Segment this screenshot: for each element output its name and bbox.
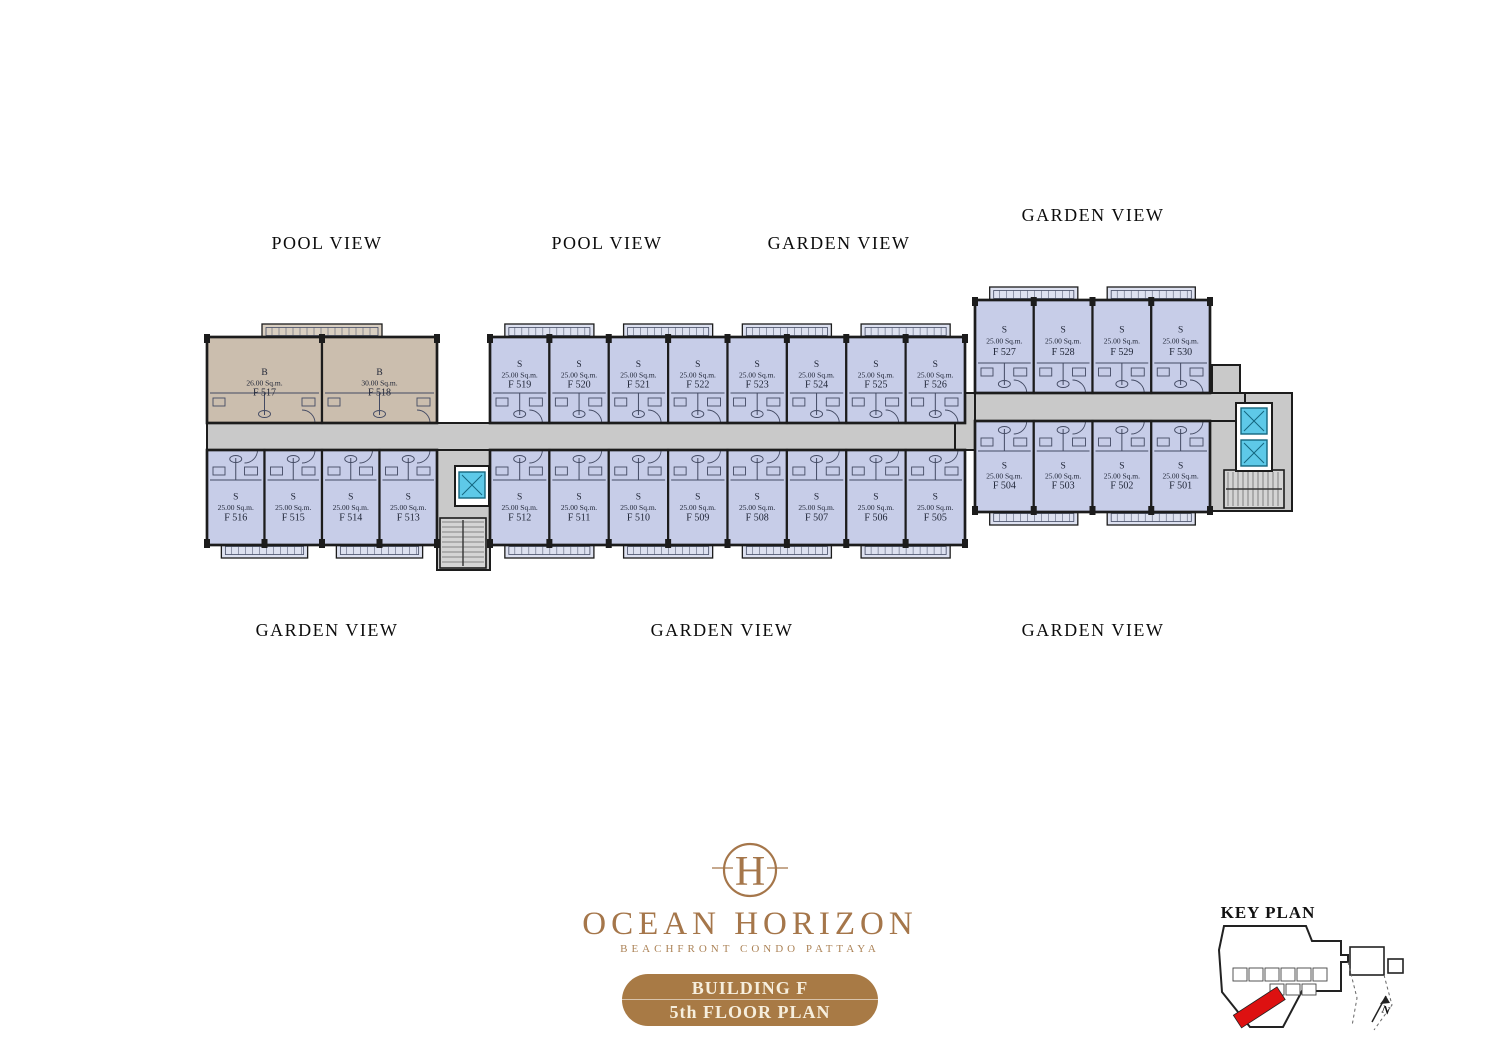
unit-area-label: 25.00 Sq.m. [1162, 337, 1198, 346]
unit-area-label: 25.00 Sq.m. [620, 370, 656, 379]
unit-number-label: F 530 [1169, 347, 1192, 358]
unit-f-508: S25.00 Sq.m.F 508 [728, 450, 787, 545]
unit-type-label: S [517, 492, 522, 502]
unit-number-label: F 524 [805, 380, 828, 391]
wall-pillar [1090, 297, 1096, 306]
unit-f-523: S25.00 Sq.m.F 523 [728, 337, 787, 423]
unit-type-label: S [406, 492, 411, 502]
unit-type-label: S [636, 492, 641, 502]
unit-f-518: B30.00 Sq.m.F 518 [322, 337, 437, 423]
unit-area-label: 25.00 Sq.m. [1045, 337, 1081, 346]
wall-pillar [1031, 506, 1037, 515]
unit-f-530: S25.00 Sq.m.F 530 [1151, 300, 1210, 393]
unit-number-label: F 507 [805, 512, 828, 523]
unit-type-label: S [1060, 326, 1065, 336]
key-plan-room [1233, 968, 1247, 981]
wall-pillar [1090, 506, 1096, 515]
wall-pillar [784, 539, 790, 548]
unit-type-label: S [1119, 326, 1124, 336]
project-name: OCEAN HORIZON [582, 906, 917, 943]
unit-number-label: F 523 [746, 380, 769, 391]
corridor [955, 393, 1245, 421]
wall-pillar [784, 334, 790, 343]
unit-type-label: S [933, 492, 938, 502]
unit-f-516: S25.00 Sq.m.F 516 [207, 450, 265, 545]
unit-f-503: S25.00 Sq.m.F 503 [1034, 421, 1093, 512]
key-plan-room [1297, 968, 1311, 981]
unit-number-label: F 521 [627, 380, 650, 391]
unit-type-label: S [636, 360, 641, 370]
unit-f-519: S25.00 Sq.m.F 519 [490, 337, 549, 423]
unit-f-506: S25.00 Sq.m.F 506 [846, 450, 905, 545]
unit-type-label: B [261, 368, 267, 378]
unit-f-510: S25.00 Sq.m.F 510 [609, 450, 668, 545]
wall-pillar [1031, 297, 1037, 306]
unit-area-label: 25.00 Sq.m. [561, 503, 597, 512]
unit-f-524: S25.00 Sq.m.F 524 [787, 337, 846, 423]
unit-f-501: S25.00 Sq.m.F 501 [1151, 421, 1210, 512]
unit-area-label: 25.00 Sq.m. [680, 370, 716, 379]
unit-type-label: B [376, 368, 382, 378]
label-garden-view-top-center: GARDEN VIEW [768, 233, 911, 254]
label-garden-view-bottom-center: GARDEN VIEW [651, 620, 794, 641]
unit-f-512: S25.00 Sq.m.F 512 [490, 450, 549, 545]
unit-number-label: F 502 [1110, 480, 1133, 491]
unit-area-label: 25.00 Sq.m. [917, 503, 953, 512]
key-plan: N [1219, 926, 1403, 1030]
unit-type-label: S [695, 360, 700, 370]
wall-pillar [377, 539, 383, 548]
unit-f-529: S25.00 Sq.m.F 529 [1093, 300, 1152, 393]
wall-pillar [319, 539, 325, 548]
key-plan-room [1286, 984, 1300, 995]
wall-pillar [725, 334, 731, 343]
wall-pillar [843, 334, 849, 343]
wall-pillar [262, 539, 268, 548]
unit-area-label: 25.00 Sq.m. [798, 503, 834, 512]
unit-type-label: S [517, 360, 522, 370]
unit-type-label: S [233, 492, 238, 502]
key-plan-title: KEY PLAN [1221, 903, 1316, 923]
key-plan-room [1249, 968, 1263, 981]
unit-area-label: 25.00 Sq.m. [986, 471, 1022, 480]
unit-area-label: 25.00 Sq.m. [275, 503, 311, 512]
unit-number-label: F 526 [924, 380, 947, 391]
unit-f-511: S25.00 Sq.m.F 511 [549, 450, 608, 545]
unit-type-label: S [1002, 461, 1007, 471]
unit-area-label: 25.00 Sq.m. [333, 503, 369, 512]
unit-number-label: F 527 [993, 347, 1016, 358]
unit-f-527: S25.00 Sq.m.F 527 [975, 300, 1034, 393]
unit-type-label: S [1178, 326, 1183, 336]
unit-number-label: F 504 [993, 480, 1016, 491]
wall-pillar [606, 539, 612, 548]
unit-f-507: S25.00 Sq.m.F 507 [787, 450, 846, 545]
unit-area-label: 25.00 Sq.m. [858, 503, 894, 512]
wall-pillar [1148, 506, 1154, 515]
unit-f-514: S25.00 Sq.m.F 514 [322, 450, 380, 545]
wall-pillar [665, 539, 671, 548]
unit-type-label: S [755, 492, 760, 502]
unit-f-526: S25.00 Sq.m.F 526 [906, 337, 965, 423]
unit-number-label: F 513 [397, 512, 420, 523]
unit-area-label: 25.00 Sq.m. [1162, 471, 1198, 480]
unit-f-504: S25.00 Sq.m.F 504 [975, 421, 1034, 512]
wall-pillar [843, 539, 849, 548]
unit-number-label: F 508 [746, 512, 769, 523]
wall-pillar [903, 334, 909, 343]
unit-number-label: F 511 [568, 512, 591, 523]
key-plan-room [1313, 968, 1327, 981]
unit-area-label: 25.00 Sq.m. [502, 503, 538, 512]
key-plan-room [1281, 968, 1295, 981]
unit-area-label: 25.00 Sq.m. [561, 370, 597, 379]
page: B26.00 Sq.m.F 517B30.00 Sq.m.F 518S25.00… [0, 0, 1500, 1060]
unit-number-label: F 520 [568, 380, 591, 391]
staircase [1224, 470, 1284, 508]
unit-number-label: F 522 [686, 380, 709, 391]
unit-type-label: S [576, 492, 581, 502]
wall-pillar [546, 539, 552, 548]
unit-number-label: F 517 [253, 388, 276, 399]
unit-number-label: F 501 [1169, 480, 1192, 491]
wall-pillar [606, 334, 612, 343]
label-garden-view-top-right: GARDEN VIEW [1022, 205, 1165, 226]
building-floor-banner: BUILDING F 5th FLOOR PLAN [622, 974, 878, 1026]
unit-number-label: F 512 [508, 512, 531, 523]
unit-f-513: S25.00 Sq.m.F 513 [380, 450, 438, 545]
label-garden-view-bottom-right: GARDEN VIEW [1022, 620, 1165, 641]
unit-number-label: F 506 [864, 512, 887, 523]
key-plan-building-east-large [1350, 947, 1384, 975]
wall-pillar [546, 334, 552, 343]
north-label: N [1380, 1004, 1392, 1018]
unit-area-label: 25.00 Sq.m. [739, 370, 775, 379]
unit-type-label: S [873, 492, 878, 502]
unit-f-520: S25.00 Sq.m.F 520 [549, 337, 608, 423]
wall-pillar [1148, 297, 1154, 306]
key-plan-building-east-small [1388, 959, 1403, 973]
unit-type-label: S [1178, 461, 1183, 471]
elevator [1241, 440, 1267, 466]
elevator [459, 472, 485, 498]
unit-f-517: B26.00 Sq.m.F 517 [207, 337, 322, 423]
unit-type-label: S [291, 492, 296, 502]
wall-pillar [725, 539, 731, 548]
banner-building-label: BUILDING F [622, 974, 878, 999]
unit-type-label: S [1119, 461, 1124, 471]
unit-type-label: S [576, 360, 581, 370]
unit-number-label: F 518 [368, 388, 391, 399]
banner-floor-label: 5th FLOOR PLAN [622, 1000, 878, 1024]
unit-type-label: S [348, 492, 353, 502]
unit-area-label: 25.00 Sq.m. [986, 337, 1022, 346]
floor-plan-drawing: B26.00 Sq.m.F 517B30.00 Sq.m.F 518S25.00… [0, 0, 1500, 1060]
unit-type-label: S [814, 492, 819, 502]
unit-number-label: F 525 [864, 380, 887, 391]
unit-f-528: S25.00 Sq.m.F 528 [1034, 300, 1093, 393]
unit-type-label: S [695, 492, 700, 502]
unit-f-509: S25.00 Sq.m.F 509 [668, 450, 727, 545]
unit-type-label: S [814, 360, 819, 370]
label-pool-view-center: POOL VIEW [552, 233, 663, 254]
project-tagline: BEACHFRONT CONDO PATTAYA [620, 943, 880, 955]
unit-area-label: 25.00 Sq.m. [502, 370, 538, 379]
key-plan-room [1265, 968, 1279, 981]
unit-area-label: 25.00 Sq.m. [390, 503, 426, 512]
staircase [440, 518, 486, 568]
elevator [1241, 408, 1267, 434]
unit-area-label: 25.00 Sq.m. [620, 503, 656, 512]
unit-number-label: F 514 [339, 512, 362, 523]
key-plan-room [1302, 984, 1316, 995]
unit-type-label: S [1060, 461, 1065, 471]
unit-type-label: S [873, 360, 878, 370]
unit-area-label: 25.00 Sq.m. [1104, 471, 1140, 480]
unit-area-label: 25.00 Sq.m. [798, 370, 834, 379]
unit-number-label: F 519 [508, 380, 531, 391]
corridor [207, 423, 975, 450]
unit-f-502: S25.00 Sq.m.F 502 [1093, 421, 1152, 512]
unit-number-label: F 516 [224, 512, 247, 523]
wall-pillar [903, 539, 909, 548]
wall-pillar [665, 334, 671, 343]
unit-f-522: S25.00 Sq.m.F 522 [668, 337, 727, 423]
unit-area-label: 25.00 Sq.m. [1045, 471, 1081, 480]
unit-f-525: S25.00 Sq.m.F 525 [846, 337, 905, 423]
units-layer: B26.00 Sq.m.F 517B30.00 Sq.m.F 518S25.00… [204, 287, 1213, 558]
label-pool-view-left: POOL VIEW [272, 233, 383, 254]
unit-area-label: 25.00 Sq.m. [680, 503, 716, 512]
unit-type-label: S [755, 360, 760, 370]
unit-type-label: S [933, 360, 938, 370]
unit-f-521: S25.00 Sq.m.F 521 [609, 337, 668, 423]
unit-number-label: F 509 [686, 512, 709, 523]
unit-area-label: 25.00 Sq.m. [917, 370, 953, 379]
unit-type-label: S [1002, 326, 1007, 336]
unit-area-label: 25.00 Sq.m. [739, 503, 775, 512]
unit-number-label: F 510 [627, 512, 650, 523]
unit-f-515: S25.00 Sq.m.F 515 [265, 450, 323, 545]
label-garden-view-bottom-left: GARDEN VIEW [256, 620, 399, 641]
unit-area-label: 25.00 Sq.m. [1104, 337, 1140, 346]
unit-area-label: 25.00 Sq.m. [858, 370, 894, 379]
logo-monogram-letter: H [735, 849, 765, 895]
unit-area-label: 26.00 Sq.m. [246, 378, 282, 387]
logo-monogram: H [712, 844, 788, 896]
unit-number-label: F 529 [1110, 347, 1133, 358]
unit-number-label: F 528 [1052, 347, 1075, 358]
unit-number-label: F 515 [282, 512, 305, 523]
unit-number-label: F 505 [924, 512, 947, 523]
unit-f-505: S25.00 Sq.m.F 505 [906, 450, 965, 545]
unit-area-label: 30.00 Sq.m. [361, 378, 397, 387]
unit-number-label: F 503 [1052, 480, 1075, 491]
wall-pillar [319, 334, 325, 343]
unit-area-label: 25.00 Sq.m. [218, 503, 254, 512]
